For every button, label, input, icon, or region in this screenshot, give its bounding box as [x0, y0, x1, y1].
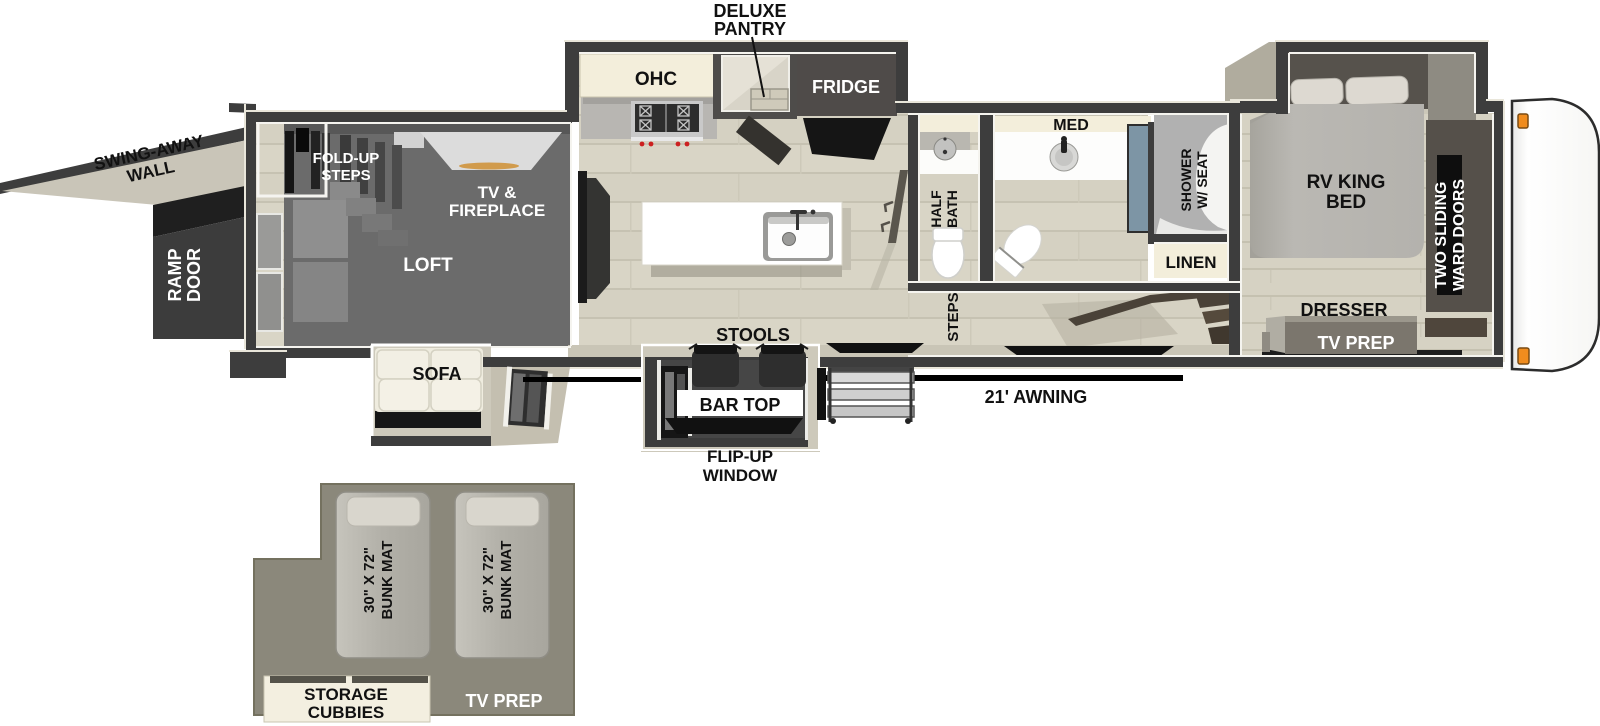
svg-text:MED: MED — [1053, 117, 1089, 134]
svg-text:STEPS: STEPS — [321, 167, 370, 184]
svg-text:FOLD-UP: FOLD-UP — [313, 150, 380, 167]
svg-text:21' AWNING: 21' AWNING — [985, 387, 1088, 407]
svg-text:30" X 72": 30" X 72" — [361, 547, 378, 613]
svg-text:FLIP-UP: FLIP-UP — [707, 447, 773, 466]
svg-text:30" X 72": 30" X 72" — [480, 547, 497, 613]
svg-text:DRESSER: DRESSER — [1300, 300, 1387, 320]
svg-text:SOFA: SOFA — [412, 364, 461, 384]
svg-text:TV &: TV & — [478, 183, 517, 202]
svg-text:RV KING: RV KING — [1307, 172, 1386, 193]
svg-text:BUNK MAT: BUNK MAT — [498, 541, 515, 620]
svg-text:CUBBIES: CUBBIES — [308, 703, 385, 722]
svg-text:FRIDGE: FRIDGE — [812, 77, 880, 97]
svg-text:STOOLS: STOOLS — [716, 325, 790, 345]
svg-text:HALF: HALF — [928, 190, 944, 228]
svg-text:SHOWER: SHOWER — [1178, 149, 1194, 212]
svg-text:TV PREP: TV PREP — [1317, 333, 1394, 353]
svg-text:DOOR: DOOR — [184, 248, 204, 302]
svg-text:OHC: OHC — [635, 69, 678, 90]
svg-text:LINEN: LINEN — [1166, 253, 1217, 272]
svg-text:FIREPLACE: FIREPLACE — [449, 201, 545, 220]
svg-text:STORAGE: STORAGE — [304, 685, 388, 704]
svg-text:TWO SLIDING: TWO SLIDING — [1433, 182, 1450, 289]
svg-text:RAMP: RAMP — [165, 249, 185, 302]
svg-text:BAR TOP: BAR TOP — [700, 395, 781, 415]
svg-text:BATH: BATH — [944, 190, 960, 228]
svg-text:DELUXE: DELUXE — [713, 1, 786, 21]
svg-text:STEPS: STEPS — [945, 292, 962, 341]
svg-text:BED: BED — [1326, 192, 1366, 213]
svg-text:W/ SEAT: W/ SEAT — [1194, 151, 1210, 209]
svg-text:WINDOW: WINDOW — [703, 466, 779, 485]
svg-text:TV PREP: TV PREP — [465, 691, 542, 711]
svg-text:BUNK MAT: BUNK MAT — [379, 541, 396, 620]
svg-text:PANTRY: PANTRY — [714, 19, 786, 39]
svg-text:WARD DOORS: WARD DOORS — [1451, 179, 1468, 291]
svg-text:LOFT: LOFT — [403, 255, 453, 276]
